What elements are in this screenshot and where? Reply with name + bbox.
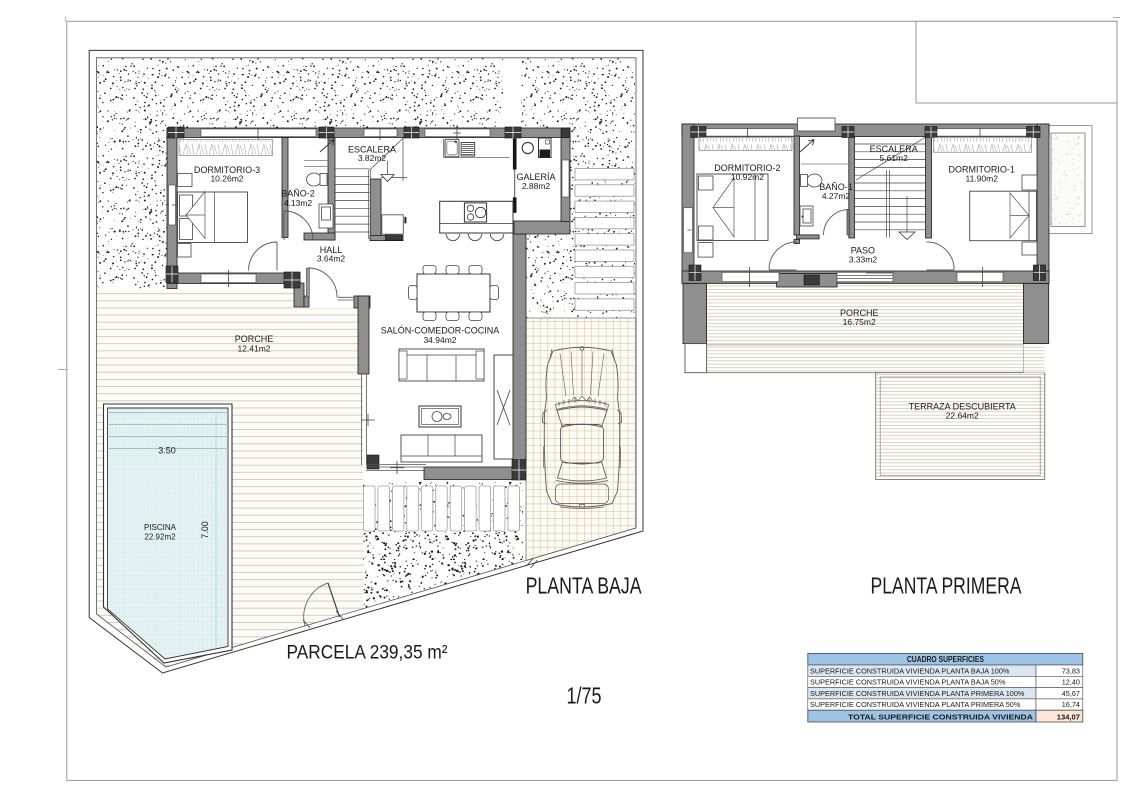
svg-text:3.82m2: 3.82m2 (358, 153, 387, 163)
svg-text:SUPERFICIE CONSTRUIDA VIVIENDA: SUPERFICIE CONSTRUIDA VIVIENDA PLANTA PR… (810, 689, 1025, 698)
svg-text:7.00: 7.00 (200, 521, 210, 539)
svg-text:TOTAL SUPERFICIE CONSTRUIDA VI: TOTAL SUPERFICIE CONSTRUIDA VIVIENDA (848, 712, 1034, 721)
svg-text:PLANTA BAJA: PLANTA BAJA (526, 573, 642, 599)
svg-text:3.33m2: 3.33m2 (849, 254, 878, 264)
svg-text:10.26m2: 10.26m2 (210, 174, 243, 184)
svg-text:PISCINA: PISCINA (144, 523, 177, 532)
svg-text:3.50: 3.50 (158, 446, 176, 456)
svg-text:3.64m2: 3.64m2 (317, 254, 346, 264)
svg-text:12,40: 12,40 (1062, 678, 1080, 687)
svg-text:16.75m2: 16.75m2 (843, 317, 876, 327)
svg-text:22.64m2: 22.64m2 (946, 411, 979, 421)
svg-text:34.94m2: 34.94m2 (423, 335, 456, 345)
svg-text:PORCHE: PORCHE (235, 334, 274, 344)
svg-text:SUPERFICIE CONSTRUIDA VIVIENDA: SUPERFICIE CONSTRUIDA VIVIENDA PLANTA PR… (810, 700, 1021, 709)
svg-text:22.92m2: 22.92m2 (144, 533, 176, 542)
svg-text:10.92m2: 10.92m2 (731, 172, 764, 182)
svg-text:4.27m2: 4.27m2 (822, 191, 851, 201)
svg-text:2.88m2: 2.88m2 (522, 181, 551, 191)
svg-text:73,83: 73,83 (1062, 666, 1080, 675)
svg-text:134,07: 134,07 (1057, 712, 1080, 721)
svg-text:SALÓN-COMEDOR-COCINA: SALÓN-COMEDOR-COCINA (381, 326, 500, 336)
svg-text:4.13m2: 4.13m2 (284, 198, 313, 208)
svg-text:5.61m2: 5.61m2 (880, 153, 909, 163)
svg-text:11.90m2: 11.90m2 (965, 174, 998, 184)
svg-text:12.41m2: 12.41m2 (237, 344, 270, 354)
svg-text:PLANTA PRIMERA: PLANTA PRIMERA (871, 573, 1022, 599)
svg-text:SUPERFICIE CONSTRUIDA VIVIENDA: SUPERFICIE CONSTRUIDA VIVIENDA PLANTA BA… (810, 678, 1006, 687)
svg-text:BAÑO-2: BAÑO-2 (281, 189, 315, 199)
svg-text:45,67: 45,67 (1062, 689, 1080, 698)
svg-text:16,74: 16,74 (1062, 700, 1080, 709)
svg-text:1/75: 1/75 (567, 683, 602, 709)
svg-text:SUPERFICIE CONSTRUIDA VIVIENDA: SUPERFICIE CONSTRUIDA VIVIENDA PLANTA BA… (810, 666, 1010, 675)
svg-text:PARCELA 239,35 m²: PARCELA 239,35 m² (287, 642, 448, 664)
svg-text:CUADRO SUPERFICIES: CUADRO SUPERFICIES (907, 655, 985, 664)
